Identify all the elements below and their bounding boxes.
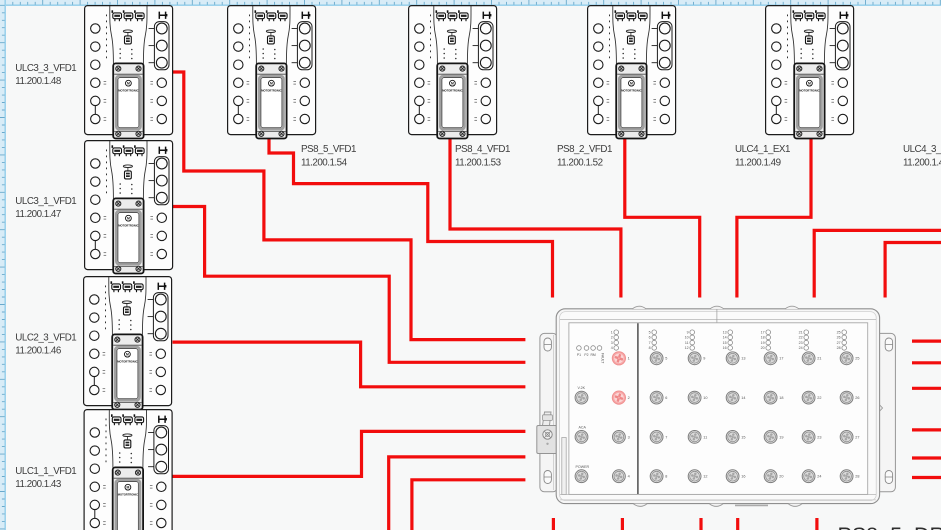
svg-text:FAULT: FAULT (600, 353, 604, 363)
svg-text:12: 12 (703, 475, 707, 479)
svg-text:20: 20 (761, 346, 765, 350)
svg-text:25: 25 (855, 357, 859, 361)
svg-text:22: 22 (799, 336, 803, 340)
svg-text:8: 8 (665, 475, 667, 479)
svg-text:1: 1 (611, 331, 613, 335)
svg-text:22: 22 (817, 396, 821, 400)
svg-text:ULC2_3_VFD1: ULC2_3_VFD1 (15, 332, 76, 343)
svg-text:11.200.1.48: 11.200.1.48 (15, 76, 62, 87)
svg-text:PS8_4_VFD1: PS8_4_VFD1 (455, 144, 510, 155)
svg-text:23: 23 (799, 341, 803, 345)
svg-text:25: 25 (837, 331, 841, 335)
svg-text:ULC1_1_VFD1: ULC1_1_VFD1 (15, 466, 76, 477)
svg-text:11.200.1.47: 11.200.1.47 (15, 209, 61, 220)
svg-text:10: 10 (703, 396, 707, 400)
svg-text:27: 27 (837, 341, 841, 345)
svg-text:21: 21 (799, 331, 803, 335)
svg-text:20: 20 (779, 475, 783, 479)
svg-text:14: 14 (741, 396, 745, 400)
svg-text:18: 18 (761, 336, 765, 340)
svg-text:V.2K: V.2K (578, 386, 586, 390)
svg-text:POWER: POWER (576, 465, 590, 469)
svg-text:10: 10 (685, 336, 689, 340)
svg-text:6: 6 (665, 396, 667, 400)
svg-text:2: 2 (611, 336, 613, 340)
svg-text:3: 3 (628, 435, 630, 439)
svg-text:15: 15 (741, 435, 745, 439)
svg-text:4: 4 (628, 475, 630, 479)
svg-text:16: 16 (723, 346, 727, 350)
svg-text:17: 17 (761, 331, 765, 335)
svg-text:1: 1 (628, 357, 630, 361)
svg-text:11.200.1.52: 11.200.1.52 (557, 157, 603, 168)
svg-text:19: 19 (779, 435, 783, 439)
svg-text:28: 28 (855, 475, 859, 479)
svg-text:4: 4 (611, 346, 613, 350)
svg-text:5: 5 (665, 357, 667, 361)
svg-text:11.200.1.49: 11.200.1.49 (735, 157, 781, 168)
svg-text:21: 21 (817, 357, 821, 361)
svg-text:16: 16 (741, 475, 745, 479)
svg-text:26: 26 (855, 396, 859, 400)
svg-text:11.200.1.43: 11.200.1.43 (15, 479, 62, 490)
svg-text:24: 24 (817, 475, 821, 479)
svg-text:18: 18 (779, 396, 783, 400)
svg-text:7: 7 (649, 341, 651, 345)
svg-text:11: 11 (685, 341, 689, 345)
svg-text:13: 13 (741, 357, 745, 361)
svg-text:7: 7 (665, 435, 667, 439)
svg-text:13: 13 (723, 331, 727, 335)
svg-text:23: 23 (817, 435, 821, 439)
svg-text:11.200.1.53: 11.200.1.53 (455, 157, 502, 168)
svg-text:28: 28 (837, 346, 841, 350)
svg-text:ULC4_1_EX1: ULC4_1_EX1 (735, 144, 790, 155)
svg-text:9: 9 (687, 331, 689, 335)
svg-text:11.200.1.46: 11.200.1.46 (15, 346, 62, 357)
svg-text:PS8_5_VFD1: PS8_5_VFD1 (301, 144, 356, 155)
svg-text:3: 3 (611, 341, 613, 345)
svg-text:P2: P2 (584, 353, 588, 357)
svg-text:5: 5 (649, 331, 651, 335)
svg-text:11.200.1.4: 11.200.1.4 (903, 157, 941, 168)
svg-text:26: 26 (837, 336, 841, 340)
svg-text:6: 6 (649, 336, 651, 340)
svg-text:27: 27 (855, 435, 859, 439)
svg-text:ULC3_1_VFD1: ULC3_1_VFD1 (15, 196, 76, 207)
svg-text:P1: P1 (577, 353, 581, 357)
svg-text:11: 11 (703, 435, 707, 439)
svg-text:PS8_5_DRM1: PS8_5_DRM1 (838, 523, 941, 530)
svg-text:PS8_2_VFD1: PS8_2_VFD1 (557, 144, 612, 155)
svg-text:RM: RM (590, 353, 595, 357)
svg-text:24: 24 (799, 346, 803, 350)
svg-text:19: 19 (761, 341, 765, 345)
svg-text:14: 14 (723, 336, 727, 340)
svg-text:8: 8 (649, 346, 651, 350)
svg-text:11.200.1.54: 11.200.1.54 (301, 157, 348, 168)
svg-text:9: 9 (703, 357, 705, 361)
svg-text:12: 12 (685, 346, 689, 350)
svg-text:ACA: ACA (579, 426, 587, 430)
svg-text:ULC4_3_E: ULC4_3_E (903, 144, 941, 155)
svg-text:2: 2 (628, 396, 630, 400)
svg-text:ULC3_3_VFD1: ULC3_3_VFD1 (15, 63, 76, 74)
svg-text:15: 15 (723, 341, 727, 345)
svg-text:17: 17 (779, 357, 783, 361)
